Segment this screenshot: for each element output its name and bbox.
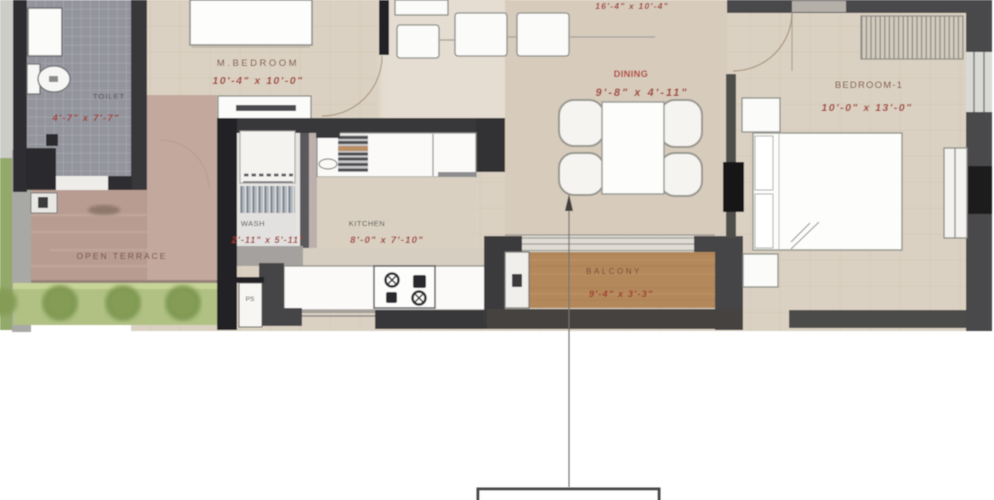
svg-text:10'-4" x 10'-0": 10'-4" x 10'-0" — [212, 75, 303, 87]
svg-text:KITCHEN: KITCHEN — [349, 219, 385, 228]
svg-text:BEDROOM-1: BEDROOM-1 — [835, 80, 903, 91]
svg-text:TOILET: TOILET — [93, 92, 125, 101]
svg-text:BALCONY: BALCONY — [586, 267, 642, 276]
svg-text:2'-11" x 5'-11": 2'-11" x 5'-11" — [231, 235, 305, 245]
svg-text:10'-0" x 13'-0": 10'-0" x 13'-0" — [821, 102, 912, 114]
svg-text:8'-0" x 7'-10": 8'-0" x 7'-10" — [350, 235, 424, 246]
svg-text:4'-7" x 7'-7": 4'-7" x 7'-7" — [51, 113, 119, 124]
svg-text:9'-8" x 4'-11": 9'-8" x 4'-11" — [596, 87, 689, 99]
svg-text:OPEN TERRACE: OPEN TERRACE — [77, 251, 168, 261]
svg-text:9'-4" x 3'-3": 9'-4" x 3'-3" — [589, 289, 654, 300]
svg-text:M.BEDROOM: M.BEDROOM — [217, 58, 299, 69]
svg-text:DINING: DINING — [614, 69, 649, 79]
svg-text:16'-4" x 10'-4": 16'-4" x 10'-4" — [595, 1, 669, 11]
svg-text:WASH: WASH — [241, 219, 265, 228]
svg-text:PS: PS — [246, 296, 255, 303]
